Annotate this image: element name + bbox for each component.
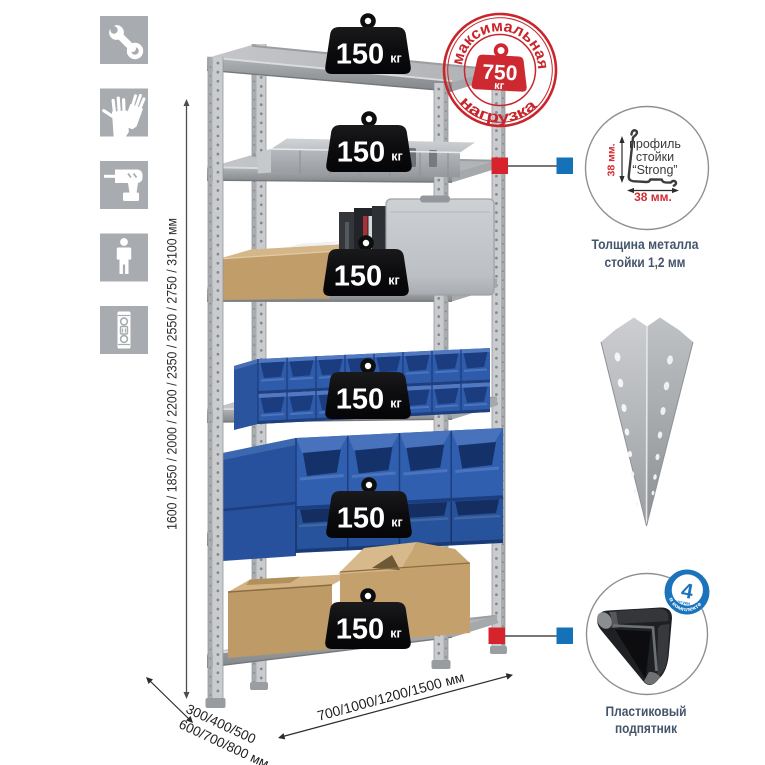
svg-text:кг: кг xyxy=(390,627,401,641)
svg-text:38 мм.: 38 мм. xyxy=(634,190,672,204)
svg-text:стойки: стойки xyxy=(636,150,674,164)
svg-text:150: 150 xyxy=(337,503,385,535)
svg-text:кг: кг xyxy=(494,80,505,93)
svg-text:38 мм.: 38 мм. xyxy=(606,143,618,176)
svg-text:150: 150 xyxy=(337,137,385,169)
svg-text:Толщина металла: Толщина металла xyxy=(592,236,699,252)
svg-text:кг: кг xyxy=(388,274,399,288)
svg-text:150: 150 xyxy=(336,39,384,71)
svg-text:150: 150 xyxy=(334,261,382,293)
svg-text:профиль: профиль xyxy=(629,137,681,151)
svg-text:Пластиковый: Пластиковый xyxy=(606,703,687,719)
svg-text:кг: кг xyxy=(390,52,401,66)
svg-text:1600 / 1850 / 2000 / 2200 / 23: 1600 / 1850 / 2000 / 2200 / 2350 / 2550 … xyxy=(165,218,180,530)
svg-text:кг: кг xyxy=(391,516,402,530)
svg-text:кг: кг xyxy=(390,397,401,411)
svg-text:стойки 1,2 мм: стойки 1,2 мм xyxy=(605,254,686,270)
svg-text:150: 150 xyxy=(336,384,384,416)
svg-text:подпятник: подпятник xyxy=(615,720,678,736)
svg-text:150: 150 xyxy=(336,614,384,646)
svg-text:“Strong”: “Strong” xyxy=(632,163,677,177)
svg-text:кг: кг xyxy=(391,150,402,164)
